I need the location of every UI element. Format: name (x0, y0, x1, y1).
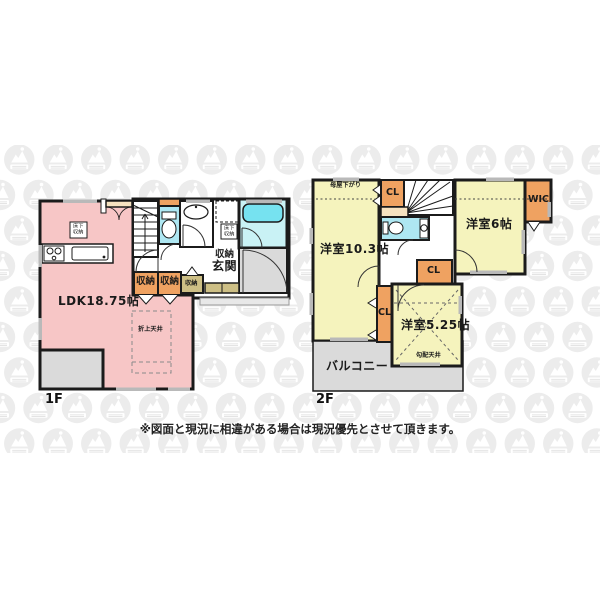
outdoor-step (200, 298, 289, 305)
label-cl-top: CL (386, 188, 399, 198)
wc-top-storage-1f (159, 199, 180, 206)
pantry-1f (106, 201, 132, 207)
label-cl-mid: CL (427, 266, 440, 276)
disclaimer-text: ※図面と現況に相違がある場合は現況優先とさせて頂きます。 (0, 421, 600, 437)
label-floor-2f: 2F (316, 393, 334, 407)
bathtub-icon (243, 204, 283, 222)
label-genkan: 玄関 (212, 260, 237, 273)
stairs-1f (133, 201, 158, 257)
label-closet-c: 収納 (185, 280, 197, 287)
label-moya-sagari: 母屋下がり (330, 182, 361, 189)
label-balcony: バルコニー (326, 360, 388, 373)
label-coffered-ceiling: 折上天井 (138, 326, 163, 333)
stairs-2f (404, 180, 453, 215)
label-floor-1f: 1F (45, 393, 63, 407)
landing-cabinet-2f (381, 207, 408, 217)
label-closet-b: 収納 (160, 277, 179, 287)
label-closet-a: 収納 (136, 277, 155, 287)
toilet-tank-icon (162, 212, 176, 219)
floorplan-document: LDK18.75帖 収納 収納 収納 収納 玄関 折上天井 床下収納 床下収納 … (0, 0, 600, 600)
toilet-bowl-icon (162, 220, 176, 238)
room-bedroom-103 (313, 180, 379, 341)
kitchen-counter-icon (42, 244, 113, 263)
label-floor-storage-ldk: 床下収納 (72, 224, 84, 235)
label-bedroom-525: 洋室5.25帖 (401, 319, 470, 332)
toilet-room-1f (159, 206, 180, 244)
toilet-tank-icon (383, 222, 388, 234)
label-bedroom-103: 洋室10.3帖 (320, 243, 389, 256)
terrace-1f (40, 350, 103, 389)
label-floor-storage-wash: 床下収納 (223, 226, 235, 237)
label-bedroom-6: 洋室6帖 (466, 218, 512, 231)
toilet-room-2f (381, 217, 429, 240)
label-ldk: LDK18.75帖 (58, 295, 139, 308)
label-sloped-ceiling: 勾配天井 (416, 352, 441, 359)
label-wic: WIC (528, 195, 549, 205)
bathroom-1f (239, 199, 287, 248)
toilet-bowl-icon (389, 222, 403, 234)
laundry-space (216, 201, 239, 222)
label-cl-side: CL (378, 308, 391, 318)
